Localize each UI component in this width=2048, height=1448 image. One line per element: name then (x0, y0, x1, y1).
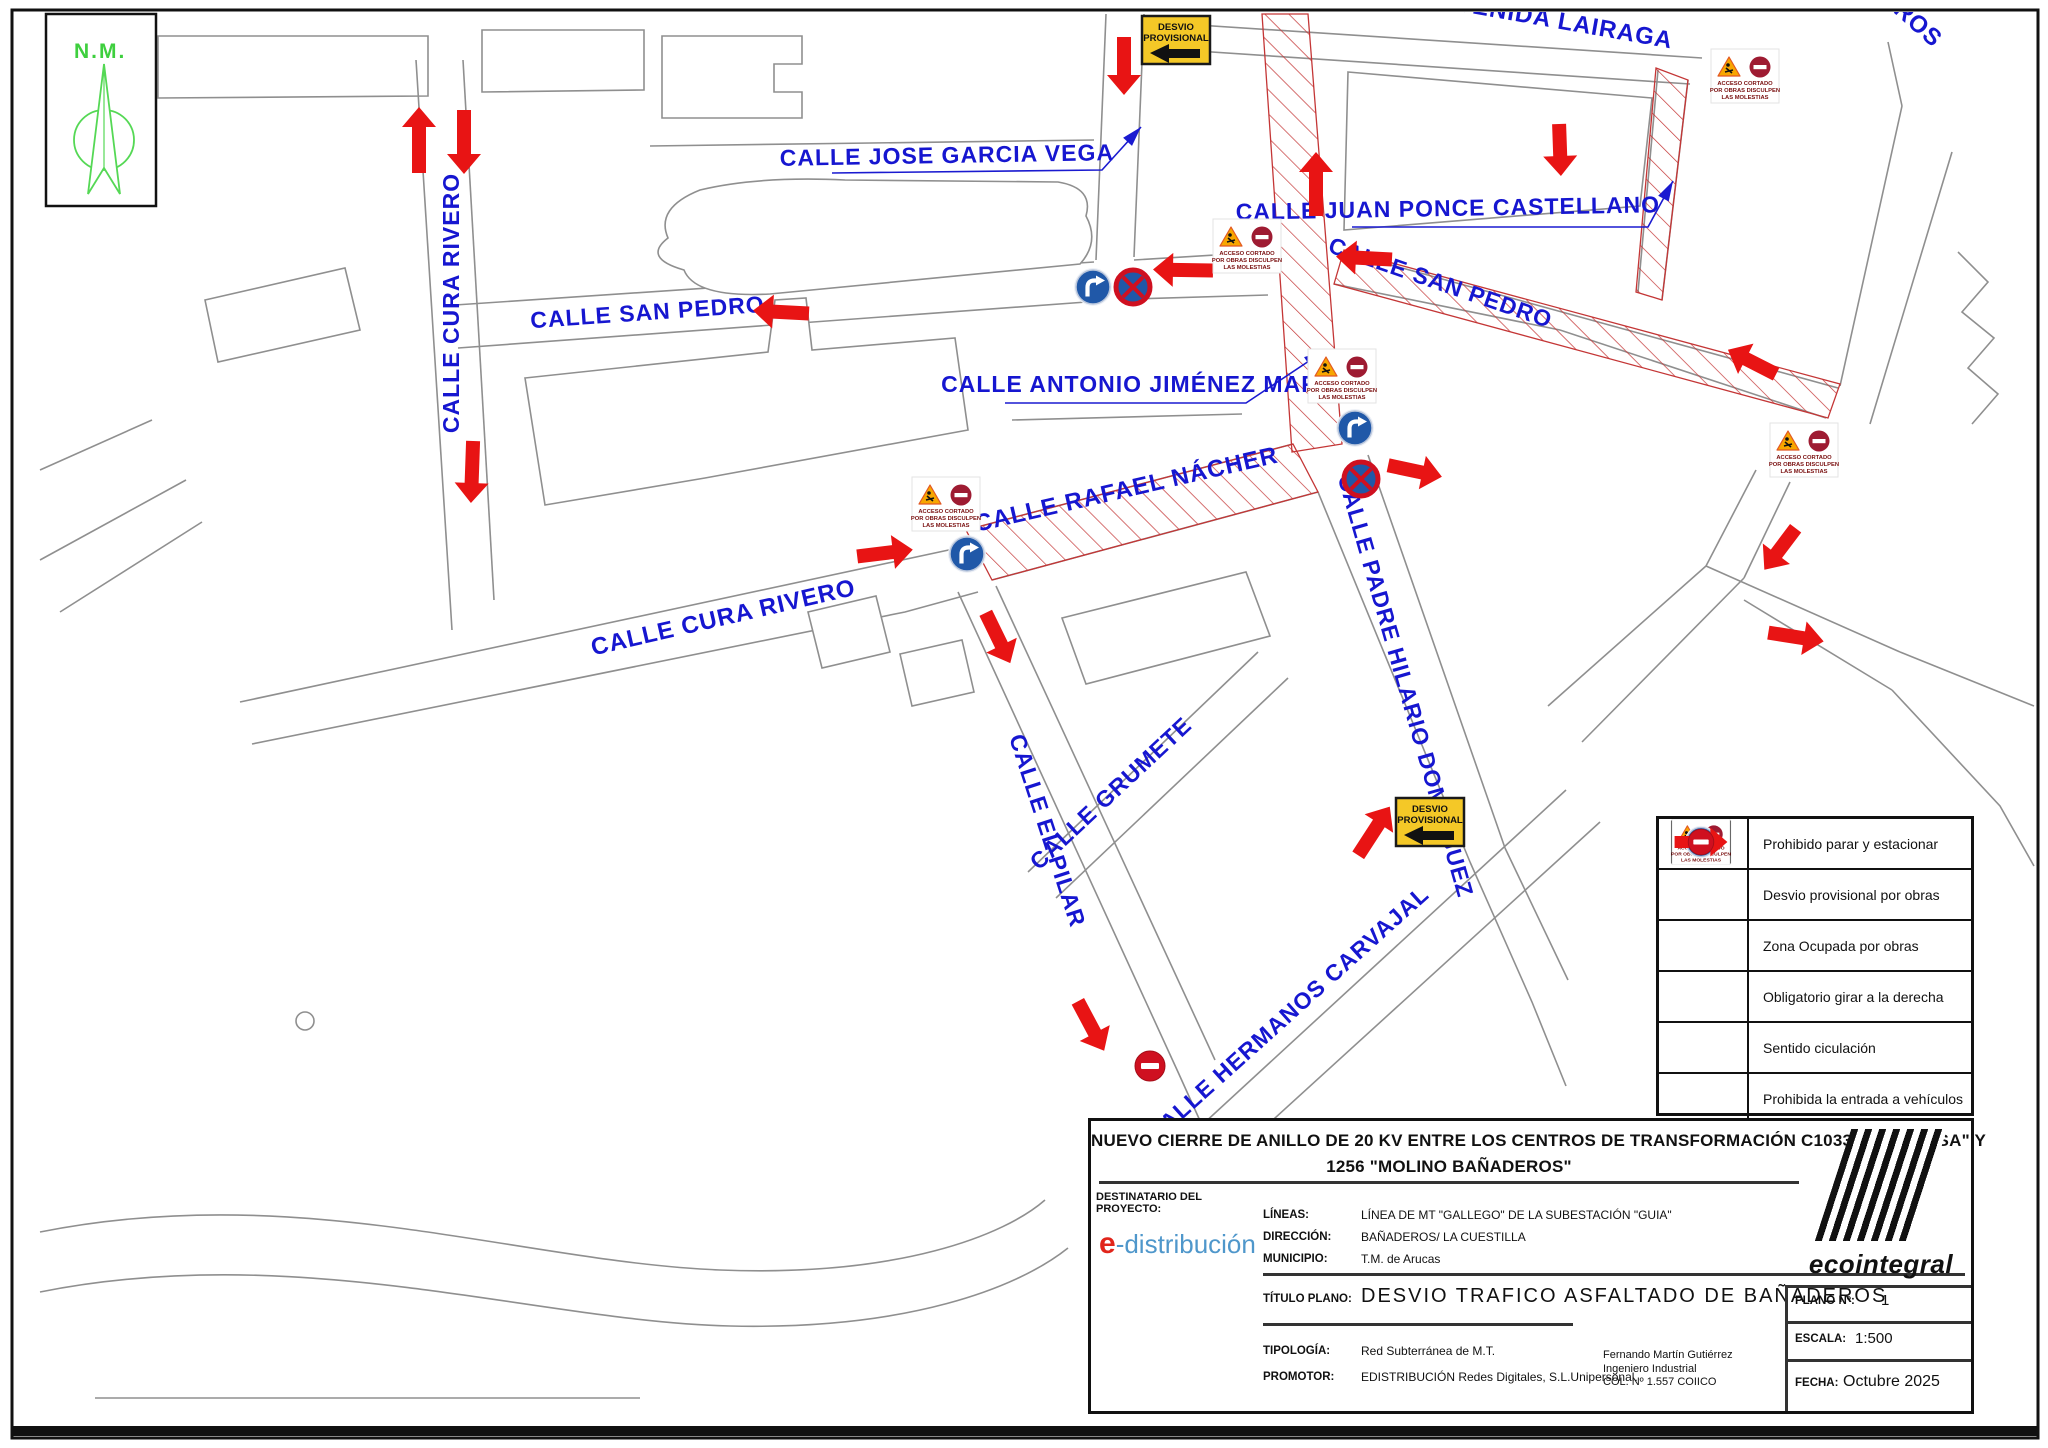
svg-text:POR OBRAS DISCULPEN: POR OBRAS DISCULPEN (1212, 258, 1282, 264)
promotor-label: PROMOTOR: (1263, 1371, 1334, 1383)
svg-text:LAS MOLESTIAS: LAS MOLESTIAS (1721, 95, 1768, 101)
legend-label: Sentido ciculación (1749, 1040, 1876, 1056)
tipologia-value: Red Subterránea de M.T. (1361, 1344, 1495, 1358)
legend-label: Obligatorio girar a la derecha (1749, 989, 1944, 1005)
svg-text:LAS MOLESTIAS: LAS MOLESTIAS (922, 523, 969, 529)
legend-label: Prohibido parar y estacionar (1749, 836, 1938, 852)
svg-text:DESVIO: DESVIO (1412, 804, 1448, 815)
turn-right-sign (1074, 268, 1112, 306)
legend-label: Desvio provisional por obras (1749, 887, 1940, 903)
works-zone-sign: ACCESO CORTADOPOR OBRAS DISCULPENLAS MOL… (1307, 349, 1377, 403)
svg-text:ACCESO CORTADO: ACCESO CORTADO (918, 509, 974, 515)
svg-text:ACCESO CORTADO: ACCESO CORTADO (1314, 381, 1370, 387)
municipio-label: MUNICIPIO: (1263, 1253, 1328, 1265)
traffic-plan-page: CALLE CURA RIVEROCALLE SAN PEDROCALLE JO… (0, 0, 2048, 1448)
legend-icon-arrow (1659, 1023, 1749, 1072)
svg-text:ACCESO CORTADO: ACCESO CORTADO (1219, 251, 1275, 257)
svg-text:PROVISIONAL: PROVISIONAL (1397, 815, 1463, 826)
map-line (158, 36, 428, 98)
legend-row: ACCESO CORTADOPOR OBRAS DISCULPENLAS MOL… (1659, 919, 1971, 970)
legend-icon-noentry (1659, 1074, 1749, 1123)
ecointegral-brand: ecointegral (1791, 1249, 1971, 1280)
titulo-plano-label: TÍTULO PLANO: (1263, 1293, 1352, 1305)
legend-row: Obligatorio girar a la derecha (1659, 970, 1971, 1021)
tipologia-label: TIPOLOGÍA: (1263, 1345, 1330, 1357)
legend: Prohibido parar y estacionarDESVIOPROVIS… (1656, 816, 1974, 1116)
legend-label: Zona Ocupada por obras (1749, 938, 1919, 954)
no-parking-sign (1344, 462, 1378, 496)
legend-icon-desvio: DESVIOPROVISIONAL (1659, 870, 1749, 919)
svg-text:POR OBRAS DISCULPEN: POR OBRAS DISCULPEN (911, 516, 981, 522)
svg-text:LAS MOLESTIAS: LAS MOLESTIAS (1780, 469, 1827, 475)
legend-row: DESVIOPROVISIONALDesvio provisional por … (1659, 868, 1971, 919)
works-zone-sign: ACCESO CORTADOPOR OBRAS DISCULPENLAS MOL… (911, 477, 981, 531)
legend-label: Prohibida la entrada a vehículos (1749, 1091, 1963, 1107)
engineer-info: Fernando Martín Gutiérrez Ingeniero Indu… (1603, 1349, 1733, 1390)
direccion-value: BAÑADEROS/ LA CUESTILLA (1361, 1230, 1526, 1244)
legend-row: Sentido ciculación (1659, 1021, 1971, 1072)
works-zone-sign: ACCESO CORTADOPOR OBRAS DISCULPENLAS MOL… (1769, 423, 1839, 477)
plano-value: 1 (1881, 1292, 1889, 1309)
compass-label: N.M. (74, 40, 126, 63)
project-title-line1: NUEVO CIERRE DE ANILLO DE 20 KV ENTRE LO… (1091, 1131, 1807, 1151)
edistribucion-logo-e: e (1099, 1227, 1116, 1260)
svg-text:PROVISIONAL: PROVISIONAL (1143, 33, 1209, 44)
project-title-line2: 1256 "MOLINO BAÑADEROS" (1091, 1157, 1807, 1177)
svg-text:DESVIO: DESVIO (1158, 22, 1194, 33)
detour-sign: DESVIOPROVISIONAL (1396, 798, 1464, 846)
no-entry-sign (1135, 1051, 1165, 1081)
no-parking-sign (1116, 270, 1150, 304)
detour-sign: DESVIOPROVISIONAL (1142, 16, 1210, 64)
works-zone-sign: ACCESO CORTADOPOR OBRAS DISCULPENLAS MOL… (1710, 49, 1780, 103)
edistribucion-logo: e-distribución (1099, 1227, 1256, 1261)
street-label: CALLE ANTONIO JIMÉNEZ MARTÍN (941, 370, 1359, 397)
escala-label: ESCALA: (1795, 1333, 1846, 1345)
destinatario-label-2: PROYECTO: (1096, 1203, 1161, 1215)
svg-text:POR OBRAS DISCULPEN: POR OBRAS DISCULPEN (1307, 388, 1377, 394)
direccion-label: DIRECCIÓN: (1263, 1231, 1331, 1243)
fecha-value: Octubre 2025 (1843, 1373, 1940, 1391)
lineas-value: LÍNEA DE MT "GALLEGO" DE LA SUBESTACIÓN … (1361, 1208, 1672, 1222)
escala-value: 1:500 (1855, 1330, 1893, 1347)
legend-row: Prohibida la entrada a vehículos (1659, 1072, 1971, 1123)
svg-text:LAS MOLESTIAS: LAS MOLESTIAS (1223, 265, 1270, 271)
promotor-value: EDISTRIBUCIÓN Redes Digitales, S.L.Unipe… (1361, 1370, 1638, 1384)
svg-text:POR OBRAS DISCULPEN: POR OBRAS DISCULPEN (1769, 462, 1839, 468)
municipio-value: T.M. de Arucas (1361, 1252, 1440, 1266)
frame-bottom-bar (12, 1426, 2038, 1436)
street-label: CALLE CURA RIVERO (438, 173, 464, 433)
svg-text:POR OBRAS DISCULPEN: POR OBRAS DISCULPEN (1710, 88, 1780, 94)
svg-text:ACCESO CORTADO: ACCESO CORTADO (1776, 455, 1832, 461)
turn-right-sign (1336, 409, 1374, 447)
fecha-label: FECHA: (1795, 1377, 1838, 1389)
edistribucion-logo-text: -distribución (1116, 1229, 1256, 1259)
turn-right-sign (948, 535, 986, 573)
no-entry-sign (1688, 829, 1714, 855)
map-line (482, 30, 644, 92)
north-compass: N.M. (46, 14, 156, 206)
legend-icon-turn (1659, 972, 1749, 1021)
destinatario-label-1: DESTINATARIO DEL (1096, 1191, 1202, 1203)
svg-text:LAS MOLESTIAS: LAS MOLESTIAS (1318, 395, 1365, 401)
svg-text:ACCESO CORTADO: ACCESO CORTADO (1717, 81, 1773, 87)
title-block: NUEVO CIERRE DE ANILLO DE 20 KV ENTRE LO… (1088, 1118, 1974, 1414)
lineas-label: LÍNEAS: (1263, 1209, 1309, 1221)
works-zone-sign: ACCESO CORTADOPOR OBRAS DISCULPENLAS MOL… (1212, 219, 1282, 273)
legend-icon-acceso: ACCESO CORTADOPOR OBRAS DISCULPENLAS MOL… (1659, 921, 1749, 970)
plano-label: PLANO Nº: (1795, 1295, 1855, 1307)
